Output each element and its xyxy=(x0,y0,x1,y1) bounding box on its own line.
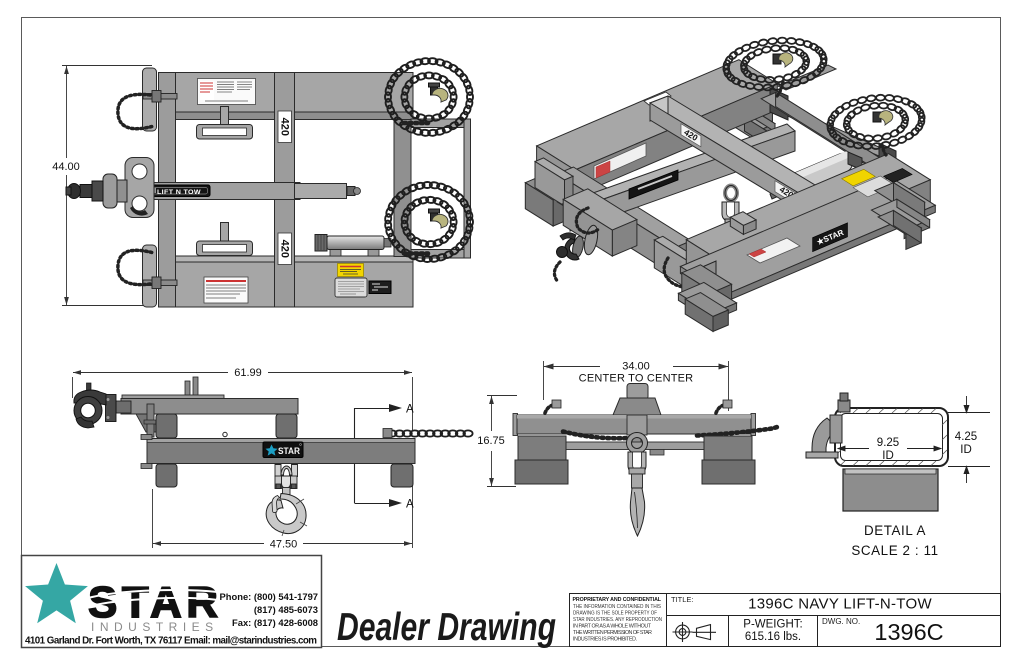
svg-text:STAR INDUSTRIES. ANY REPRODUCT: STAR INDUSTRIES. ANY REPRODUCTION xyxy=(573,617,662,623)
svg-text:34.00: 34.00 xyxy=(622,361,650,373)
svg-text:(817) 485-6073: (817) 485-6073 xyxy=(254,604,318,615)
svg-text:SCALE 2 : 11: SCALE 2 : 11 xyxy=(851,543,938,558)
svg-text:61.99: 61.99 xyxy=(234,367,262,379)
svg-text:STAR: STAR xyxy=(278,446,300,457)
svg-text:16.75: 16.75 xyxy=(477,435,505,447)
svg-text:THE WRITTEN PERMISSION OF STAR: THE WRITTEN PERMISSION OF STAR xyxy=(573,630,652,636)
svg-text:1396C: 1396C xyxy=(874,619,943,645)
svg-text:THE INFORMATION CONTAINED IN T: THE INFORMATION CONTAINED IN THIS xyxy=(573,604,661,610)
svg-text:DRAWING IS THE SOLE PROPERTY O: DRAWING IS THE SOLE PROPERTY OF xyxy=(573,611,658,617)
svg-text:PROPRIETARY AND CONFIDENTIAL: PROPRIETARY AND CONFIDENTIAL xyxy=(573,597,662,603)
svg-text:IN PART OR AS A WHOLE WITHOUT: IN PART OR AS A WHOLE WITHOUT xyxy=(573,624,652,630)
svg-text:ID: ID xyxy=(882,450,894,462)
svg-text:Phone: (800) 541-1797: Phone: (800) 541-1797 xyxy=(220,591,318,602)
svg-text:420: 420 xyxy=(279,240,291,258)
svg-text:INDUSTRIES IS PROHIBITED.: INDUSTRIES IS PROHIBITED. xyxy=(573,637,637,643)
svg-text:LIFT N TOW: LIFT N TOW xyxy=(157,189,201,196)
svg-text:420: 420 xyxy=(279,118,291,136)
svg-text:1396C NAVY LIFT-N-TOW: 1396C NAVY LIFT-N-TOW xyxy=(748,596,932,613)
svg-text:DWG. NO.: DWG. NO. xyxy=(822,617,860,626)
svg-text:Dealer Drawing: Dealer Drawing xyxy=(337,606,556,649)
svg-text:4101 Garland Dr. Fort Worth, T: 4101 Garland Dr. Fort Worth, TX 76117 Em… xyxy=(25,636,317,647)
svg-text:CENTER TO CENTER: CENTER TO CENTER xyxy=(579,373,694,385)
svg-text:47.50: 47.50 xyxy=(270,538,298,550)
svg-text:A: A xyxy=(406,404,414,416)
svg-text:A: A xyxy=(406,499,414,511)
svg-text:9.25: 9.25 xyxy=(877,437,899,449)
svg-text:DETAIL A: DETAIL A xyxy=(864,523,926,538)
svg-text:TITLE:: TITLE: xyxy=(671,595,694,604)
svg-text:615.16 lbs.: 615.16 lbs. xyxy=(745,631,801,643)
svg-text:P-WEIGHT:: P-WEIGHT: xyxy=(743,619,802,631)
svg-text:4.25: 4.25 xyxy=(955,431,977,443)
svg-text:INDUSTRIES: INDUSTRIES xyxy=(91,620,219,634)
svg-text:44.00: 44.00 xyxy=(52,161,80,173)
svg-text:ID: ID xyxy=(960,444,972,456)
svg-text:Fax: (817) 428-6008: Fax: (817) 428-6008 xyxy=(232,617,318,628)
